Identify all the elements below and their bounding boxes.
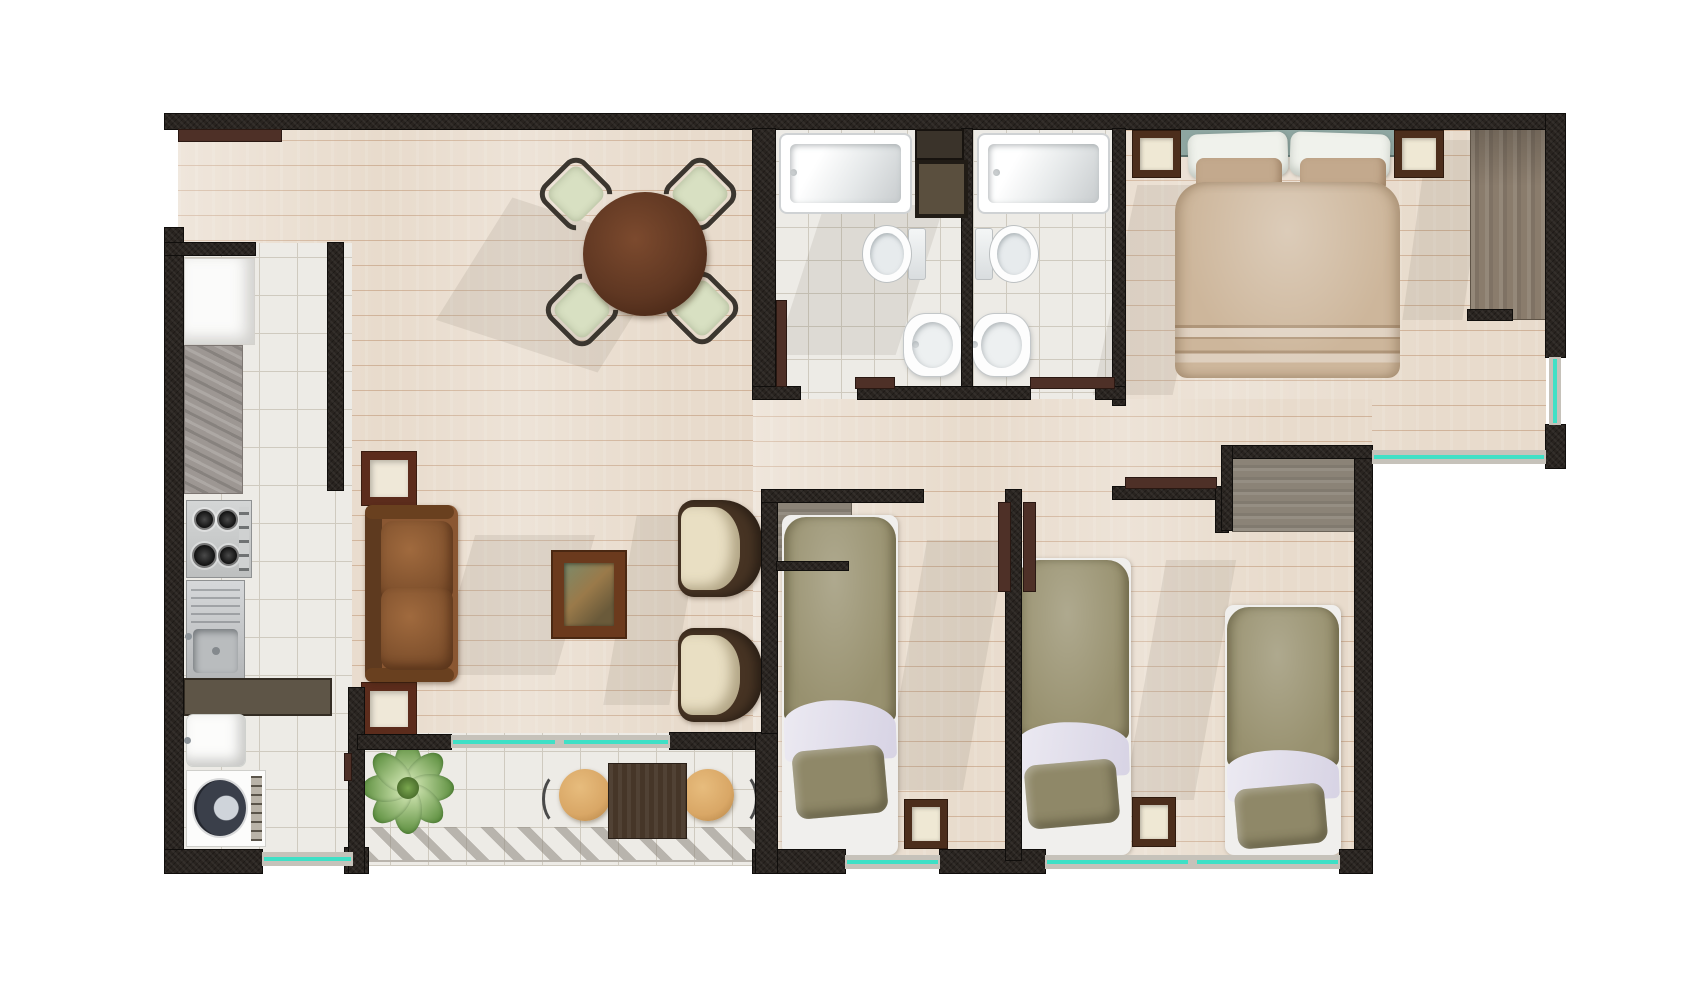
- sink-drainer: [191, 585, 240, 623]
- laundry-faucet: [184, 737, 191, 744]
- sink-faucet: [912, 341, 919, 348]
- nightstand-top: [912, 807, 940, 841]
- end-table: [362, 452, 416, 505]
- wall-kitchen-partition-upper: [328, 243, 343, 490]
- nightstand: [1133, 131, 1180, 177]
- stove-knobs: [239, 507, 249, 571]
- end-table-top: [370, 460, 408, 497]
- bed-blanket: [1227, 607, 1339, 767]
- armchair-seat: [681, 507, 740, 590]
- stove-burner: [192, 543, 217, 568]
- sink-basin: [193, 629, 238, 673]
- floor-plan: [0, 0, 1700, 1000]
- balcony-grill: [366, 827, 758, 862]
- wall-balcony-right: [756, 733, 777, 873]
- wall-bottom-left: [165, 850, 262, 873]
- double-bed-blanket: [1175, 182, 1400, 378]
- wall-closet3-side: [1222, 446, 1232, 530]
- laundry-sink: [186, 714, 246, 767]
- armchair: [678, 628, 762, 722]
- wall-master-right-upper: [1546, 114, 1565, 357]
- bathtub-inner: [988, 144, 1099, 203]
- service-shaft: [915, 129, 964, 160]
- end-table: [362, 683, 416, 735]
- wall-closet2-stub: [777, 562, 848, 570]
- toilet: [862, 225, 912, 283]
- window-laundry: [262, 852, 353, 866]
- bathtub: [977, 133, 1110, 214]
- nightstand: [905, 800, 947, 848]
- window-glass: [1374, 455, 1544, 459]
- end-table-top: [370, 691, 408, 727]
- potted-plant: [368, 748, 448, 828]
- sofa-armrest: [365, 668, 454, 682]
- armchair-seat: [681, 635, 740, 715]
- bed-pillow: [1023, 758, 1120, 830]
- bistro-chair: [682, 769, 734, 821]
- stove-burner: [217, 509, 238, 530]
- bathtub-inner: [790, 144, 901, 203]
- bistro-chair: [559, 769, 611, 821]
- bedroom3-door: [1023, 502, 1036, 592]
- bathroom1-door: [855, 377, 895, 389]
- nightstand: [1133, 798, 1175, 846]
- nightstand: [1395, 131, 1443, 177]
- nightstand-top: [1140, 805, 1168, 839]
- nightstand-top: [1140, 138, 1173, 170]
- toilet-seat: [870, 233, 904, 275]
- sofa-cushion: [381, 588, 453, 669]
- granite-counter: [184, 345, 243, 494]
- wall-bedrooms-bottom-mid: [940, 850, 1045, 873]
- wall-bathroom-bottom-a: [753, 387, 800, 399]
- wall-bedroom2-top: [762, 490, 923, 502]
- washer-drum: [194, 780, 246, 836]
- window-glass: [1553, 359, 1557, 423]
- bistro-table: [608, 763, 687, 839]
- stove-burner: [218, 545, 239, 566]
- gas-stove: [186, 500, 252, 578]
- sink-bowl: [981, 322, 1022, 368]
- kitchen-sink: [186, 580, 245, 680]
- window-glass: [264, 857, 351, 861]
- armchair: [678, 500, 762, 597]
- wall-bedroom3-right: [1355, 446, 1372, 873]
- window-bedroom2: [845, 855, 940, 869]
- tub-faucet: [790, 169, 797, 176]
- bathroom2-door: [1030, 377, 1115, 389]
- entry-door: [178, 129, 282, 142]
- wall-bathroom-right: [1113, 129, 1125, 405]
- wardrobe: [1470, 129, 1548, 320]
- bathroom1-door-jamb: [776, 300, 787, 387]
- sink-faucet: [185, 633, 192, 640]
- round-dining-table: [583, 192, 707, 316]
- bed-pillow: [1234, 782, 1329, 850]
- sofa-backrest: [365, 505, 382, 682]
- sofa: [365, 505, 458, 682]
- sofa-armrest: [365, 505, 454, 519]
- closet: [1232, 457, 1357, 532]
- plant-core: [397, 777, 419, 799]
- bathtub: [779, 133, 912, 214]
- coffee-table: [553, 552, 625, 637]
- sink-drain: [212, 647, 220, 655]
- wall-left: [165, 228, 183, 873]
- bed-pillow: [791, 744, 889, 820]
- bedroom2-door: [998, 502, 1011, 592]
- wall-master-right-lower: [1546, 425, 1565, 468]
- window-master-right: [1549, 357, 1561, 425]
- wall-wardrobe-end: [1468, 310, 1512, 320]
- wall-balcony-top-left: [358, 735, 451, 749]
- wall-kitchen-stub: [165, 243, 255, 255]
- window-glass: [847, 860, 938, 864]
- washing-machine: [186, 770, 266, 847]
- tub-faucet: [993, 169, 1000, 176]
- wall-bathroom-left: [753, 129, 775, 399]
- nightstand-top: [1402, 138, 1436, 170]
- window-mullion: [1188, 855, 1197, 869]
- master-bedroom-door: [1125, 477, 1217, 489]
- wall-master-bottom: [1222, 446, 1372, 458]
- stove-burner: [194, 509, 215, 530]
- kitchen-counter: [183, 678, 332, 716]
- window-mullion: [555, 735, 564, 748]
- window-master-bottom: [1372, 450, 1546, 464]
- wall-top: [165, 114, 1565, 129]
- toilet-seat: [997, 233, 1031, 275]
- service-shaft: [915, 160, 968, 218]
- washer-panel: [251, 776, 262, 841]
- pedestal-sink: [972, 313, 1031, 377]
- wall-bedrooms-bottom-right: [1340, 850, 1372, 873]
- laundry-door: [344, 753, 352, 781]
- sink-faucet: [971, 341, 978, 348]
- wall-bedroom2-left: [762, 490, 777, 733]
- window-bedroom3: [1045, 855, 1340, 869]
- bed-blanket: [784, 517, 896, 722]
- toilet: [989, 225, 1039, 283]
- refrigerator: [184, 258, 255, 345]
- pedestal-sink: [903, 313, 962, 377]
- coffee-table-inlay: [564, 563, 614, 626]
- window-balcony-slider: [451, 735, 670, 748]
